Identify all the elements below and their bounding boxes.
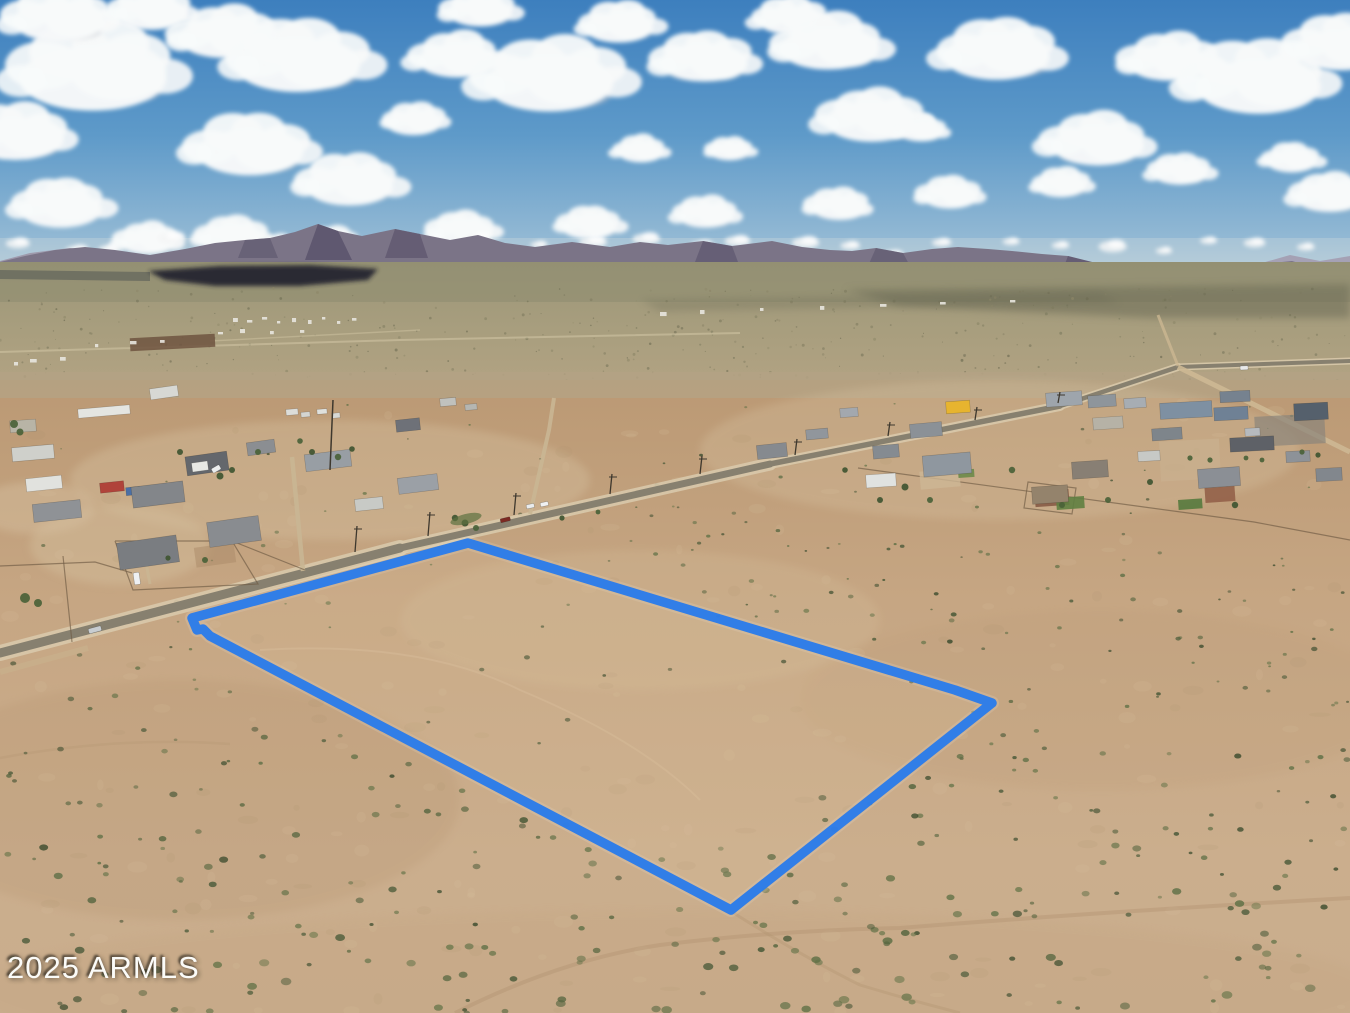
scene-svg bbox=[0, 0, 1350, 1013]
watermark-text: 2025 ARMLS bbox=[7, 950, 200, 986]
aerial-photo-listing: 2025 ARMLS bbox=[0, 0, 1350, 1013]
